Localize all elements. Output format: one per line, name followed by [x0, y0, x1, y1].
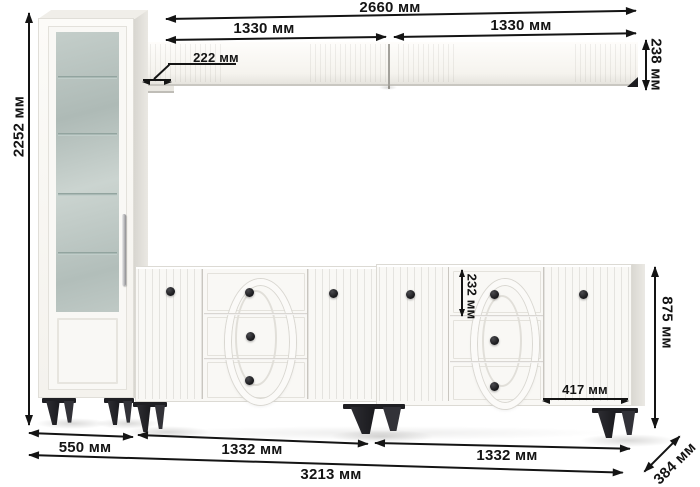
drawer-knob: [490, 382, 499, 391]
shelf-fluting: [398, 44, 455, 82]
sideboard-leg: [133, 402, 167, 432]
panel-gap: [448, 267, 449, 401]
dim-cabinet-width-arrow: [29, 432, 133, 438]
drawer-separator: [204, 313, 307, 315]
dim-sideboard-height-label: 875 мм: [660, 287, 675, 359]
dim-drawer-height-label: 232 мм: [466, 269, 479, 325]
dim-sideboard-height-arrow: [654, 267, 656, 428]
door-knob: [166, 287, 175, 296]
panel-gap: [202, 269, 203, 399]
cabinet-door-handle: [122, 214, 126, 286]
dim-total-height-label: 2252 мм: [12, 82, 27, 172]
sideboard-right-side-panel: [630, 264, 645, 406]
glass-shelf: [58, 76, 117, 79]
cabinet-glass-window: [56, 32, 119, 312]
dim-door-width-arrow: [543, 398, 628, 400]
door-knob: [329, 289, 338, 298]
dim-shelf-left-label: 1330 мм: [219, 21, 309, 36]
glass-shelf: [58, 193, 117, 196]
shelf-divider: [388, 44, 390, 89]
drawer-knob: [246, 332, 255, 341]
sideboard-right-door-right: [544, 267, 630, 401]
dim-cabinet-width-label: 550 мм: [54, 440, 116, 455]
cabinet-leg: [42, 398, 76, 425]
drawer-knob: [490, 336, 499, 345]
door-knob: [579, 290, 588, 299]
drawer-knob: [490, 290, 499, 299]
shelf-divider-shadow: [379, 85, 397, 90]
dim-shelf-depth-arrow: [143, 79, 171, 81]
sideboard-left-door-right: [308, 269, 375, 399]
dim-door-width-label: 417 мм: [556, 383, 614, 396]
sideboard-right-door-left: [379, 267, 446, 401]
glass-shelf: [58, 133, 117, 136]
dim-drawer-height-arrow: [461, 270, 463, 316]
sideboard-leg: [592, 408, 638, 438]
shelf-fluting: [575, 44, 636, 82]
door-knob: [406, 290, 415, 299]
drawer-separator: [450, 361, 543, 363]
dim-shelf-height-label: 238 мм: [649, 34, 664, 96]
dim-shelf-depth-leader: [168, 63, 236, 65]
drawer-oval-inner-ring: [482, 295, 522, 387]
shelf-bracket: [148, 86, 174, 93]
drawer-oval-inner-ring: [235, 290, 277, 386]
dim-sideboard-left-width-label: 1332 мм: [216, 442, 288, 457]
glass-shelf: [58, 252, 117, 255]
dim-total-height-arrow: [28, 13, 30, 425]
drawer-knob: [245, 288, 254, 297]
dim-total-width-label: 3213 мм: [294, 467, 368, 482]
cabinet-lower-panel: [57, 318, 118, 384]
cabinet-leg: [104, 398, 134, 425]
drawer-knob: [245, 376, 254, 385]
dim-shelf-total-label: 2660 мм: [345, 0, 435, 15]
drawer-separator: [204, 358, 307, 360]
dim-sideboard-right-width-label: 1332 мм: [470, 448, 544, 463]
dim-shelf-right-label: 1330 мм: [476, 18, 566, 33]
shelf-fluting: [310, 44, 388, 82]
furniture-dimension-diagram: 2252 мм 2660 мм 1330 мм 1330 мм 222 мм 2…: [0, 0, 700, 487]
sideboard-leg: [343, 404, 405, 434]
